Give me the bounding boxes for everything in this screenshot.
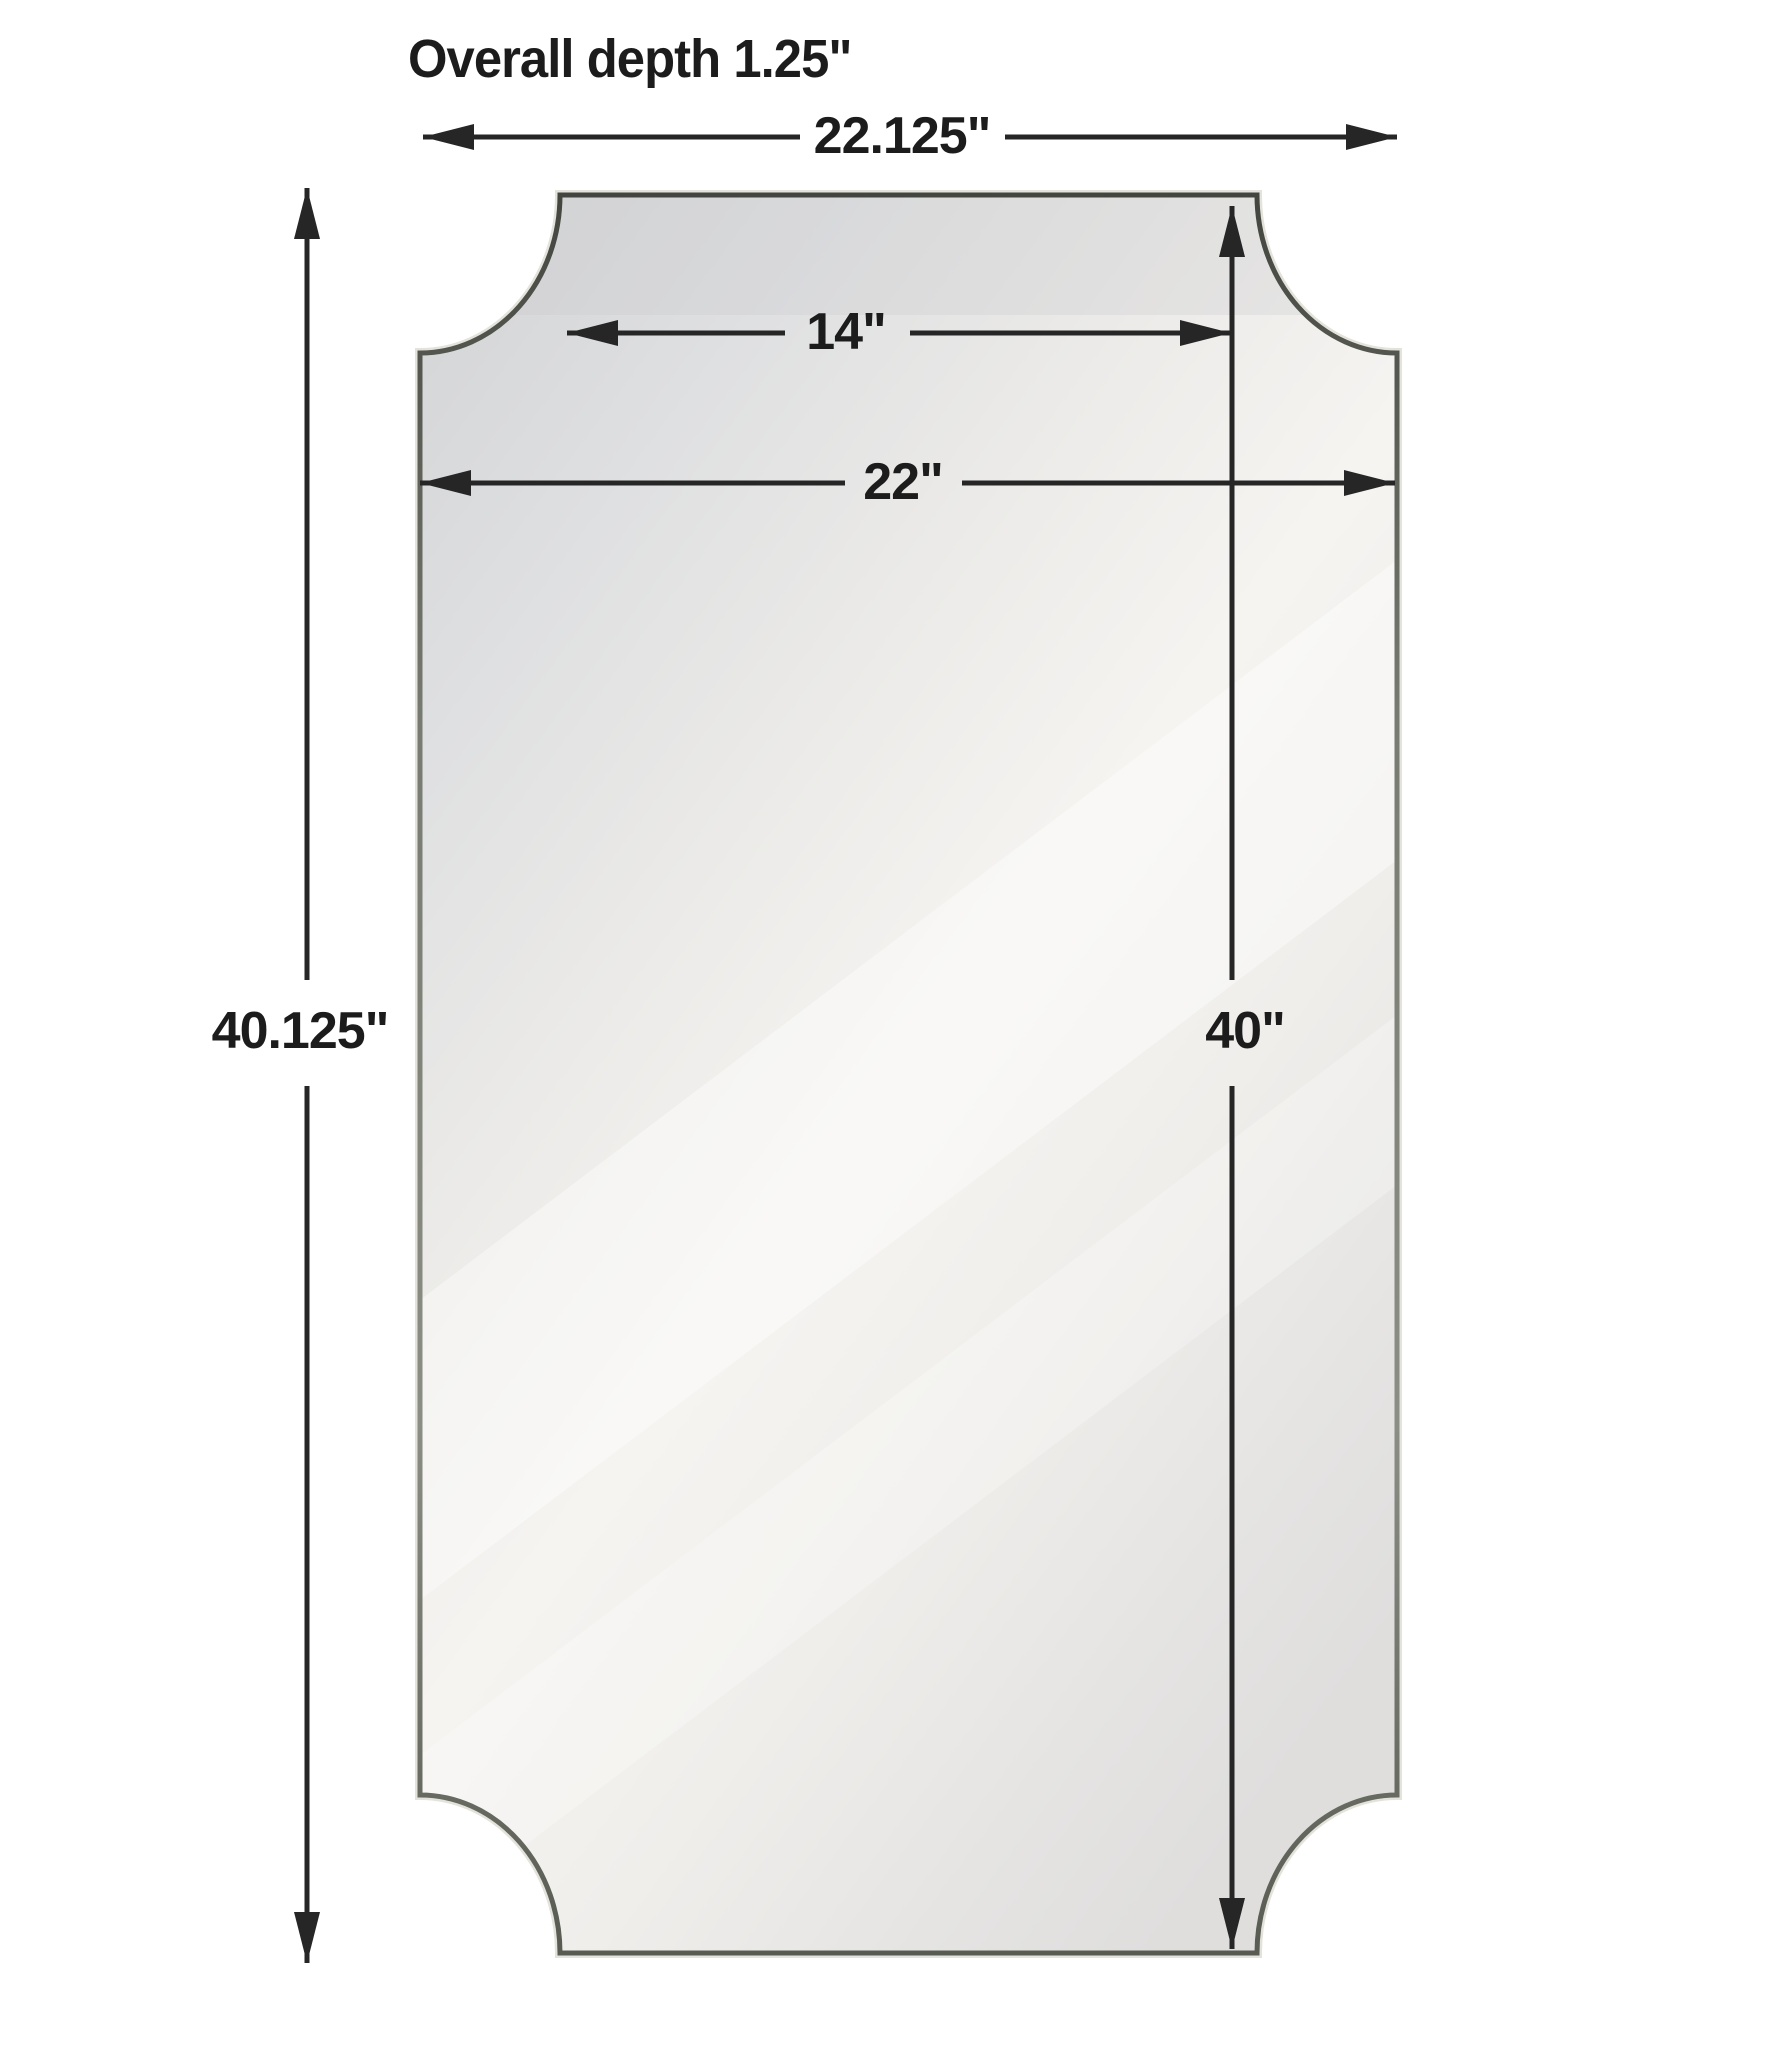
overall-height-label: 40.125": [212, 1005, 389, 1057]
mirror-dimension-diagram: Overall depth 1.25" 22.125" 14" 22" 40.1…: [0, 0, 1788, 2048]
top-width-label: 14": [806, 306, 886, 358]
overall-width-label: 22.125": [814, 110, 991, 162]
mirror-width-label: 22": [863, 456, 943, 508]
overall-depth-label: Overall depth 1.25": [408, 32, 852, 86]
mirror-height-label: 40": [1205, 1005, 1285, 1057]
